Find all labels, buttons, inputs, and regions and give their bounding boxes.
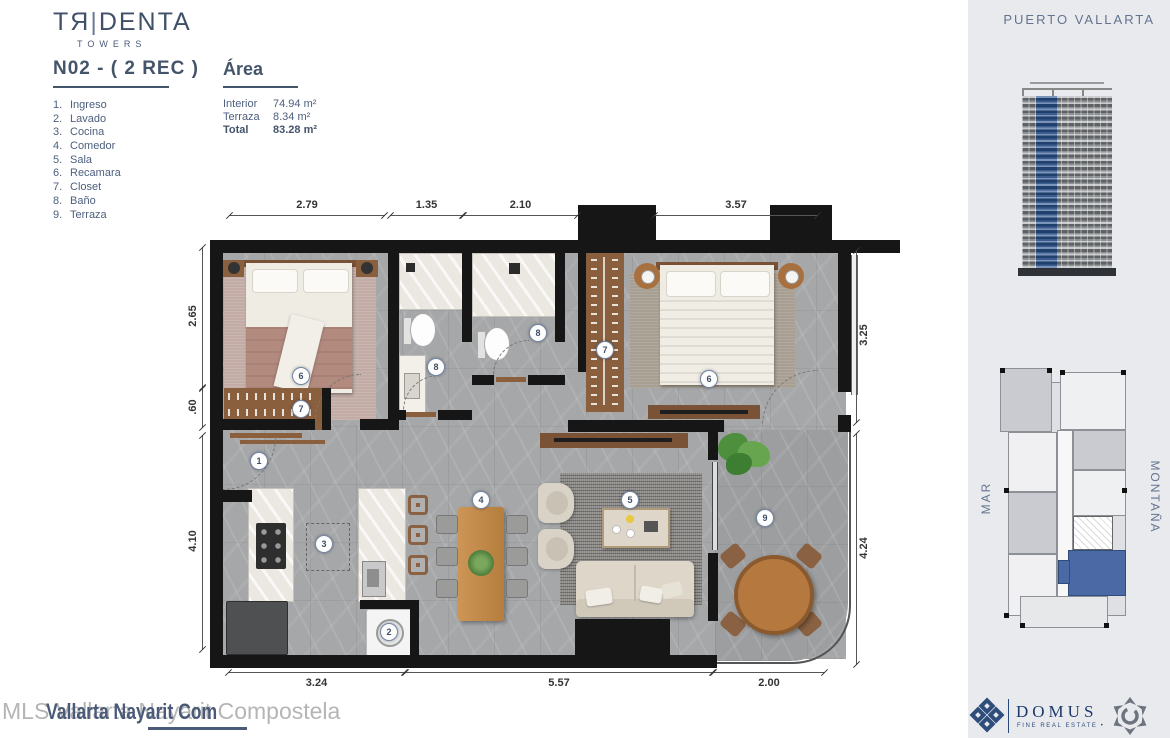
area-title: Área bbox=[223, 59, 263, 80]
wall-bath2-right bbox=[555, 240, 565, 342]
dimension-line bbox=[713, 672, 825, 673]
legend-label: Recamara bbox=[70, 167, 121, 181]
legend-item: 7.Closet bbox=[53, 181, 121, 195]
floorplate-unit bbox=[1008, 432, 1057, 492]
wall-bedroom2-right bbox=[388, 240, 399, 430]
unit-title: N02 - ( 2 REC ) bbox=[53, 58, 199, 80]
dining-chair bbox=[506, 547, 528, 566]
area-row: Interior74.94 m² bbox=[223, 98, 317, 111]
wall-bath2-bottom-l bbox=[472, 375, 494, 385]
island-sink-basin bbox=[367, 569, 379, 587]
area-value: 83.28 m² bbox=[273, 124, 317, 137]
area-underline bbox=[223, 86, 298, 88]
legend-item: 6.Recamara bbox=[53, 167, 121, 181]
area-label: Terraza bbox=[223, 111, 273, 124]
legend-num: 9. bbox=[53, 209, 70, 223]
wall-bedroom2-bottom-r bbox=[360, 419, 399, 430]
dimension-label: 4.10 bbox=[187, 521, 199, 561]
floorplate-unit bbox=[1000, 368, 1052, 432]
legend-num: 5. bbox=[53, 154, 70, 168]
bedroom2-lamp bbox=[228, 262, 240, 274]
bath1-showerhead bbox=[406, 263, 415, 272]
legend-label: Closet bbox=[70, 181, 101, 195]
area-value: 74.94 m² bbox=[273, 98, 316, 111]
legend-item: 1.Ingreso bbox=[53, 99, 121, 113]
room-tag-recamara-2: 6 bbox=[292, 367, 310, 385]
legend-num: 2. bbox=[53, 113, 70, 127]
room-tag-comedor: 4 bbox=[472, 491, 490, 509]
legend-label: Baño bbox=[70, 195, 96, 209]
dimension-line bbox=[202, 435, 203, 650]
room-legend: 1.Ingreso 2.Lavado 3.Cocina 4.Comedor 5.… bbox=[53, 99, 121, 222]
wall-shaft-a bbox=[578, 205, 656, 242]
stove bbox=[256, 523, 286, 569]
bar-stool bbox=[408, 555, 428, 575]
dining-chair bbox=[506, 515, 528, 534]
wall-master-bottom bbox=[568, 420, 724, 432]
brand-name: TЯ|DENTA bbox=[53, 8, 192, 37]
master-pillow bbox=[720, 271, 770, 297]
wall-bottom bbox=[210, 655, 717, 668]
area-label: Interior bbox=[223, 98, 273, 111]
coffee-cup bbox=[612, 525, 621, 534]
armchair-cushion bbox=[546, 537, 568, 561]
room-tag-lavado: 2 bbox=[380, 623, 398, 641]
dimension-line bbox=[463, 215, 578, 216]
bath1-shower bbox=[399, 253, 464, 310]
master-lamp bbox=[641, 270, 655, 284]
floorplate-unit bbox=[1073, 430, 1126, 470]
room-tag-cocina: 3 bbox=[315, 535, 333, 553]
dimension-label: 3.57 bbox=[654, 199, 818, 211]
wall-terrace-upper bbox=[708, 432, 718, 460]
wall-terrace-lower bbox=[708, 553, 718, 621]
floorplate-column bbox=[1121, 370, 1126, 375]
emblem-icon bbox=[1110, 696, 1150, 736]
dimension-line bbox=[202, 388, 203, 428]
legend-item: 5.Sala bbox=[53, 154, 121, 168]
title-underline bbox=[53, 86, 169, 88]
floorplate-column bbox=[1122, 488, 1127, 493]
tower-base bbox=[1018, 268, 1116, 276]
closet-hangers bbox=[228, 393, 318, 400]
master-tv bbox=[660, 410, 748, 414]
tower-roof-line bbox=[1030, 82, 1104, 84]
bath2-showerhead bbox=[509, 263, 520, 274]
legend-item: 3.Cocina bbox=[53, 126, 121, 140]
floorplan-sheet: TЯ|DENTA TOWERS N02 - ( 2 REC ) Área 1.I… bbox=[0, 0, 1170, 738]
floorplate-column bbox=[1004, 613, 1009, 618]
dimension-line bbox=[405, 672, 713, 673]
tower-unit-stack-highlight bbox=[1036, 96, 1057, 268]
floorplate-column bbox=[1060, 370, 1065, 375]
room-tag-bano-2: 8 bbox=[529, 324, 547, 342]
location-title: PUERTO VALLARTA bbox=[1000, 12, 1155, 27]
bar-stool bbox=[408, 495, 428, 515]
armchair-cushion bbox=[546, 491, 568, 515]
dimension-label: 5.57 bbox=[405, 677, 713, 689]
coffee-table-flowers bbox=[626, 515, 634, 523]
wardrobe-hangers bbox=[612, 257, 618, 405]
bedroom2-pillow bbox=[252, 269, 298, 293]
sofa-seam bbox=[634, 565, 636, 601]
legend-item: 9.Terraza bbox=[53, 209, 121, 223]
bath1-toilet bbox=[410, 313, 436, 347]
floorplate-unit bbox=[1060, 372, 1126, 430]
master-lamp bbox=[785, 270, 799, 284]
legend-label: Lavado bbox=[70, 113, 106, 127]
legend-item: 4.Comedor bbox=[53, 140, 121, 154]
area-label: Total bbox=[223, 124, 273, 137]
floorplate-column bbox=[1104, 623, 1109, 628]
coffee-table-tray bbox=[644, 521, 658, 532]
refrigerator bbox=[226, 601, 288, 655]
bedroom2-pillow bbox=[303, 269, 349, 293]
dimension-line bbox=[856, 250, 857, 423]
wall-left bbox=[210, 240, 223, 657]
room-tag-closet-2: 7 bbox=[292, 400, 310, 418]
dimension-label: 3.24 bbox=[228, 677, 405, 689]
area-table: Interior74.94 m² Terraza8.34 m² Total83.… bbox=[223, 98, 317, 137]
label-montana: MONTAÑA bbox=[1148, 442, 1162, 552]
domus-divider bbox=[1008, 699, 1009, 733]
floorplate-highlighted-unit-notch bbox=[1058, 560, 1070, 584]
area-row: Terraza8.34 m² bbox=[223, 111, 317, 124]
dining-plant bbox=[468, 550, 494, 576]
floor-plan bbox=[210, 205, 910, 670]
room-tag-bano-1: 8 bbox=[427, 358, 445, 376]
wardrobe-hangers bbox=[591, 257, 597, 405]
floorplate-diagram bbox=[1000, 368, 1134, 630]
room-tag-sala: 5 bbox=[621, 491, 639, 509]
dimension-label: .60 bbox=[187, 387, 199, 427]
legend-label: Terraza bbox=[70, 209, 107, 223]
wall-bedroom2-bottom-l bbox=[210, 419, 315, 430]
legend-label: Cocina bbox=[70, 126, 104, 140]
wall-wardrobe-left bbox=[578, 240, 586, 372]
floorplate-column bbox=[1004, 488, 1009, 493]
master-pillow bbox=[666, 271, 716, 297]
floorplate-unit bbox=[1020, 596, 1108, 628]
wall-bath1-bottom-r bbox=[438, 410, 472, 420]
dimension-line bbox=[390, 215, 463, 216]
floorplate-column bbox=[1000, 368, 1005, 373]
wardrobe-rod bbox=[603, 257, 605, 405]
watermark-overlay-text: Vallarta Nayarit Com bbox=[46, 699, 217, 725]
wall-bath1-bottom-l bbox=[388, 410, 406, 420]
living-tv bbox=[554, 438, 672, 442]
wall-bath2-bottom-r bbox=[528, 375, 565, 385]
legend-label: Comedor bbox=[70, 140, 115, 154]
watermark-underline bbox=[148, 727, 247, 730]
dimension-label: 2.10 bbox=[463, 199, 578, 211]
room-tag-recamara-principal: 6 bbox=[700, 370, 718, 388]
dining-chair bbox=[436, 547, 458, 566]
legend-item: 2.Lavado bbox=[53, 113, 121, 127]
dimension-label: 4.24 bbox=[858, 528, 870, 568]
wall-laundry-right bbox=[410, 600, 419, 658]
dimension-line bbox=[856, 433, 857, 665]
legend-num: 1. bbox=[53, 99, 70, 113]
dimension-label: 1.35 bbox=[390, 199, 463, 211]
wall-right bbox=[838, 240, 851, 392]
dimension-label: 2.79 bbox=[229, 199, 385, 211]
dining-chair bbox=[436, 579, 458, 598]
area-value: 8.34 m² bbox=[273, 111, 310, 124]
floorplate-column bbox=[1047, 368, 1052, 373]
floorplate-unit bbox=[1008, 492, 1057, 554]
wall-right-stub bbox=[838, 415, 851, 432]
wall-kitchen-notch bbox=[210, 490, 252, 502]
dining-chair bbox=[436, 515, 458, 534]
legend-num: 7. bbox=[53, 181, 70, 195]
bath1-threshold bbox=[406, 412, 436, 417]
dining-chair bbox=[506, 579, 528, 598]
legend-num: 4. bbox=[53, 140, 70, 154]
floorplate-core bbox=[1073, 516, 1113, 550]
dimension-line bbox=[228, 672, 405, 673]
legend-num: 6. bbox=[53, 167, 70, 181]
room-tag-terraza: 9 bbox=[756, 509, 774, 527]
domus-tagline: FINE REAL ESTATE • bbox=[1017, 723, 1104, 729]
floorplate-highlighted-unit bbox=[1068, 550, 1126, 596]
coffee-cup bbox=[626, 529, 635, 538]
dimension-label: 3.25 bbox=[858, 315, 870, 355]
room-tag-closet-principal: 7 bbox=[596, 341, 614, 359]
brand-logo: TЯ|DENTA TOWERS bbox=[53, 8, 192, 49]
wall-bath-divider bbox=[462, 240, 472, 342]
room-tag-ingreso: 1 bbox=[250, 452, 268, 470]
master-blanket bbox=[660, 299, 774, 383]
wall-closet-end bbox=[322, 388, 331, 430]
dimension-label: 2.65 bbox=[187, 296, 199, 336]
brand-subtitle: TOWERS bbox=[77, 39, 192, 49]
floorplate-column bbox=[1020, 623, 1025, 628]
dimension-line bbox=[654, 215, 818, 216]
legend-item: 8.Baño bbox=[53, 195, 121, 209]
legend-label: Sala bbox=[70, 154, 92, 168]
domus-logo-text: DOMUS bbox=[1016, 702, 1097, 722]
legend-num: 3. bbox=[53, 126, 70, 140]
terrace-sliding-door bbox=[712, 462, 718, 550]
bath2-threshold bbox=[496, 377, 526, 382]
legend-label: Ingreso bbox=[70, 99, 107, 113]
area-row-total: Total83.28 m² bbox=[223, 124, 317, 137]
terrace-railing bbox=[715, 430, 851, 664]
dimension-line bbox=[229, 215, 385, 216]
legend-num: 8. bbox=[53, 195, 70, 209]
bedroom2-lamp bbox=[361, 262, 373, 274]
label-mar: MAR bbox=[979, 458, 993, 538]
floorplate-unit bbox=[1073, 470, 1126, 516]
dimension-line bbox=[202, 247, 203, 388]
domus-icon bbox=[972, 700, 1002, 730]
bar-stool bbox=[408, 525, 428, 545]
dimension-label: 2.00 bbox=[713, 677, 825, 689]
wall-sofa-back bbox=[575, 619, 670, 655]
